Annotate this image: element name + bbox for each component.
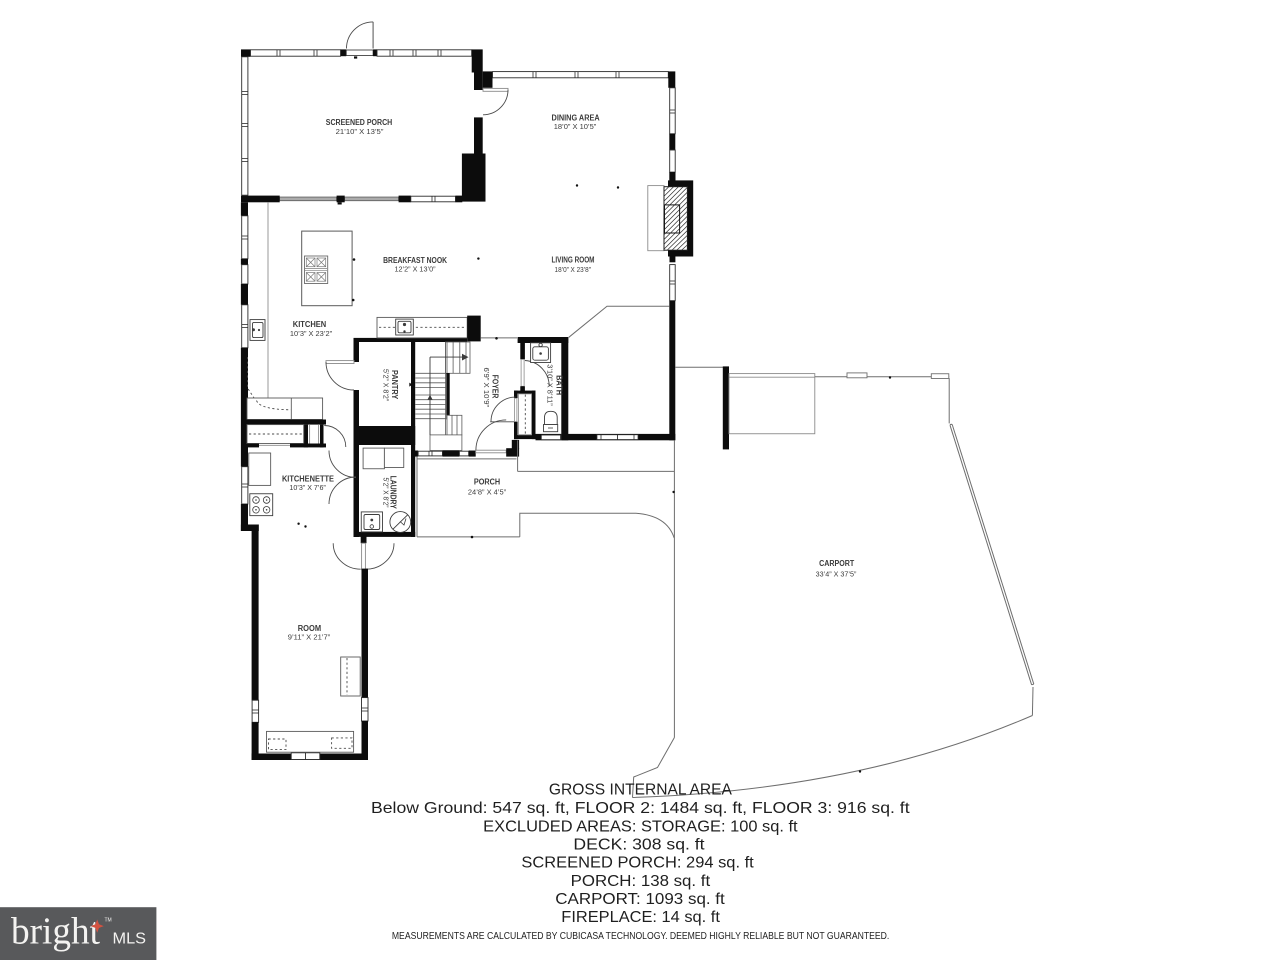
svg-text:18’0” X 10’5”: 18’0” X 10’5” <box>554 122 597 131</box>
svg-text:ROOM: ROOM <box>298 624 321 633</box>
svg-text:MEASUREMENTS ARE CALCULATED BY: MEASUREMENTS ARE CALCULATED BY CUBICASA … <box>392 931 890 942</box>
svg-text:33’4” X 37’5”: 33’4” X 37’5” <box>816 570 857 579</box>
svg-text:24’8” X 4’5”: 24’8” X 4’5” <box>468 487 507 496</box>
svg-text:bright: bright <box>11 911 100 953</box>
svg-text:GROSS INTERNAL AREA: GROSS INTERNAL AREA <box>549 782 732 799</box>
svg-text:DINING AREA: DINING AREA <box>552 113 600 122</box>
svg-text:BATH: BATH <box>555 375 564 395</box>
svg-text:LIVING ROOM: LIVING ROOM <box>552 256 595 265</box>
svg-text:9’11” X 21’7”: 9’11” X 21’7” <box>288 633 331 642</box>
svg-text:KITCHENETTE: KITCHENETTE <box>282 474 334 483</box>
svg-text:5’2” X 8’2”: 5’2” X 8’2” <box>381 478 390 508</box>
svg-text:12’2” X 13’0”: 12’2” X 13’0” <box>395 265 436 274</box>
svg-text:MLS: MLS <box>113 930 147 947</box>
svg-text:EXCLUDED AREAS: STORAGE: 100 s: EXCLUDED AREAS: STORAGE: 100 sq. ft <box>483 818 798 835</box>
svg-text:KITCHEN: KITCHEN <box>293 320 327 329</box>
svg-text:CARPORT: 1093 sq. ft: CARPORT: 1093 sq. ft <box>555 891 725 908</box>
svg-text:DECK: 308 sq. ft: DECK: 308 sq. ft <box>573 837 705 854</box>
svg-text:SCREENED PORCH: SCREENED PORCH <box>326 118 393 127</box>
svg-text:FOYER: FOYER <box>491 375 500 399</box>
svg-text:Below Ground: 547 sq. ft, FLOO: Below Ground: 547 sq. ft, FLOOR 2: 1484 … <box>371 800 910 817</box>
svg-text:CARPORT: CARPORT <box>819 559 854 568</box>
svg-text:6’9” X 10’9”: 6’9” X 10’9” <box>482 368 491 408</box>
svg-text:BREAKFAST NOOK: BREAKFAST NOOK <box>383 256 447 265</box>
svg-text:21’10” X 13’5”: 21’10” X 13’5” <box>336 127 384 136</box>
svg-text:SCREENED PORCH: 294 sq. ft: SCREENED PORCH: 294 sq. ft <box>521 855 754 872</box>
svg-text:FIREPLACE: 14 sq. ft: FIREPLACE: 14 sq. ft <box>561 909 720 926</box>
svg-text:10’3” X 23’2”: 10’3” X 23’2” <box>290 329 333 338</box>
svg-text:PORCH: PORCH <box>474 477 501 486</box>
svg-text:18’0” X 23’8”: 18’0” X 23’8” <box>555 265 592 274</box>
svg-text:TM: TM <box>105 918 112 924</box>
svg-text:3’10” X 8’11”: 3’10” X 8’11” <box>545 364 554 406</box>
svg-text:PORCH: 138 sq. ft: PORCH: 138 sq. ft <box>571 873 711 890</box>
svg-text:10’3” X 7’6”: 10’3” X 7’6” <box>289 483 326 492</box>
svg-text:5’2” X 8’2”: 5’2” X 8’2” <box>382 369 391 402</box>
